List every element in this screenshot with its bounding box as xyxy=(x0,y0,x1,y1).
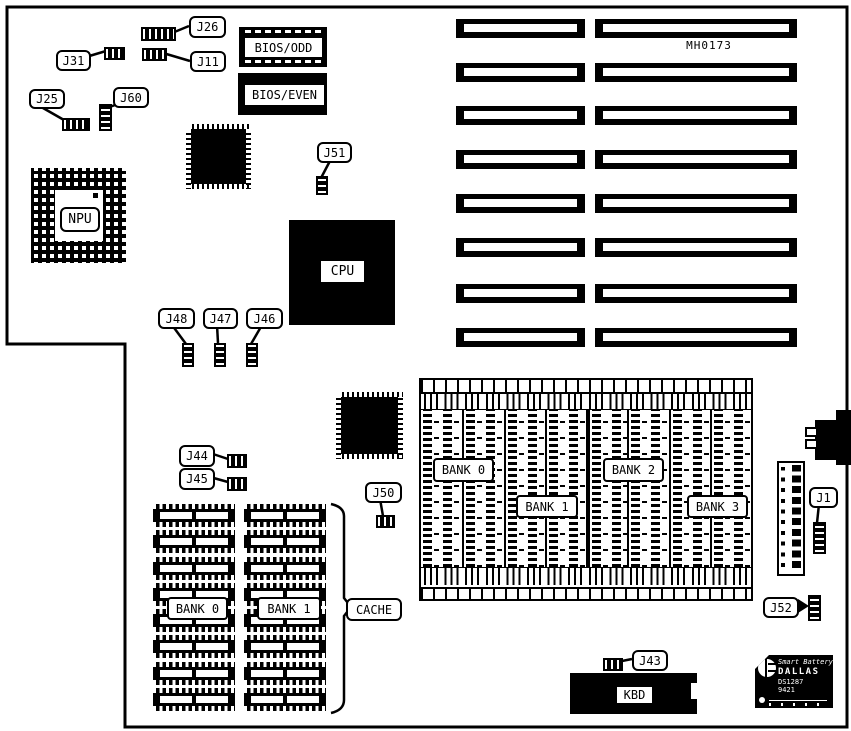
expansion-slot-bar xyxy=(595,106,797,125)
jumper-j47 xyxy=(214,343,226,367)
slot-stripe xyxy=(603,199,789,207)
jumper-j46 xyxy=(246,343,258,367)
bios-even-label: BIOS/EVEN xyxy=(245,85,324,105)
jumper-label-j1: J1 xyxy=(809,487,838,508)
jumper-label-j48: J48 xyxy=(158,308,195,329)
expansion-slot-bar xyxy=(456,19,585,38)
simm-bank1-label: BANK 1 xyxy=(516,495,578,518)
slot-stripe xyxy=(464,111,577,119)
battery-brand-script: Smart Battery xyxy=(778,659,833,666)
slot-stripe xyxy=(464,199,577,207)
expansion-slot-bar xyxy=(456,238,585,257)
jumper-j1 xyxy=(813,522,826,554)
bios-dash-top xyxy=(245,30,321,33)
expansion-slot-bar xyxy=(456,328,585,347)
jumper-j31 xyxy=(104,47,125,60)
cache-chip xyxy=(244,557,326,580)
jumper-label-j26: J26 xyxy=(189,16,226,38)
jumper-j51 xyxy=(316,176,328,195)
cache-label: CACHE xyxy=(346,598,402,621)
cache-chip xyxy=(153,557,235,580)
jumper-label-j52: J52 xyxy=(763,597,799,618)
slot-stripe xyxy=(464,243,577,251)
simm-socket xyxy=(710,410,751,567)
slot-stripe xyxy=(464,68,577,76)
battery-brand: DALLAS xyxy=(778,668,820,677)
slot-stripe xyxy=(603,24,789,32)
simm-tab-strip xyxy=(421,380,751,394)
jumper-label-j46: J46 xyxy=(246,308,283,329)
expansion-slot-bar xyxy=(456,284,585,303)
cache-bank0-label: BANK 0 xyxy=(167,597,228,620)
jumper-label-j51: J51 xyxy=(317,142,352,163)
simm-socket xyxy=(669,410,710,567)
simm-socket xyxy=(627,410,669,567)
expansion-slot-bar xyxy=(595,150,797,169)
simm-clip-row xyxy=(421,394,751,410)
cache-chip xyxy=(244,688,326,711)
simm-bank2-label: BANK 2 xyxy=(603,458,664,482)
cache-bank1-label: BANK 1 xyxy=(257,597,321,620)
slot-stripe xyxy=(464,155,577,163)
cache-chip xyxy=(244,504,326,527)
slot-stripe xyxy=(464,333,577,341)
cache-chip xyxy=(153,635,235,658)
cache-chip xyxy=(244,530,326,553)
simm-clip-row xyxy=(421,567,751,585)
expansion-slot-bar xyxy=(595,328,797,347)
simm-bank0-label: BANK 0 xyxy=(433,458,494,482)
jumper-j11 xyxy=(142,48,167,61)
expansion-slot-bar xyxy=(456,106,585,125)
expansion-slot-bar xyxy=(456,63,585,82)
expansion-slot-bar xyxy=(595,284,797,303)
cache-chip xyxy=(244,635,326,658)
jumper-label-j44: J44 xyxy=(179,445,215,467)
kbd-chip-notch xyxy=(691,683,697,699)
jumper-label-j31: J31 xyxy=(56,50,91,71)
j1-header-connector xyxy=(777,461,805,576)
jumper-j50 xyxy=(376,515,395,528)
expansion-slot-bar xyxy=(595,194,797,213)
qfp-chip xyxy=(336,392,403,459)
battery-bottom-marks xyxy=(769,700,827,706)
jumper-j45 xyxy=(227,477,247,491)
jumper-label-j60: J60 xyxy=(113,87,149,108)
jumper-label-j50: J50 xyxy=(365,482,402,503)
expansion-slot-bar xyxy=(595,63,797,82)
simm-memory-block xyxy=(419,378,753,601)
slot-stripe xyxy=(464,24,577,32)
simm-bank3-label: BANK 3 xyxy=(687,495,748,518)
slot-stripe xyxy=(603,333,789,341)
din-connector-neck xyxy=(815,420,838,460)
simm-socket xyxy=(545,410,586,567)
jumper-j48 xyxy=(182,343,194,367)
slot-stripe xyxy=(603,68,789,76)
npu-label: NPU xyxy=(60,207,100,232)
cache-chip xyxy=(153,504,235,527)
jumper-label-j45: J45 xyxy=(179,468,215,490)
slot-stripe xyxy=(464,289,577,297)
cache-chip xyxy=(153,688,235,711)
slot-stripe xyxy=(603,289,789,297)
din-connector-tab xyxy=(805,439,818,449)
jumper-j52 xyxy=(808,595,821,621)
slot-stripe xyxy=(603,155,789,163)
slot-stripe xyxy=(603,243,789,251)
jumper-j44 xyxy=(227,454,247,468)
simm-socket xyxy=(462,410,504,567)
npu-socket-cavity: NPU xyxy=(55,190,103,241)
battery-model: DS1287 xyxy=(778,679,803,686)
expansion-slot-bar xyxy=(595,238,797,257)
simm-socket xyxy=(586,410,627,567)
jumper-j60 xyxy=(99,104,112,131)
simm-socket xyxy=(421,410,462,567)
cpu-label: CPU xyxy=(321,261,364,282)
expansion-slot-bar xyxy=(595,19,797,38)
cache-chip xyxy=(153,662,235,685)
jumper-label-j47: J47 xyxy=(203,308,238,329)
battery-pin1-dot xyxy=(759,697,765,703)
kbd-label: KBD xyxy=(617,687,652,703)
jumper-label-j25: J25 xyxy=(29,89,65,109)
jumper-j26 xyxy=(141,27,176,41)
simm-tab-strip xyxy=(421,587,751,599)
jumper-label-j11: J11 xyxy=(190,51,226,72)
jumper-label-j43: J43 xyxy=(632,650,668,671)
din-connector-tab xyxy=(805,427,818,437)
slot-stripe xyxy=(603,111,789,119)
battery-date-code: 9421 xyxy=(778,687,795,694)
qfp-chip xyxy=(186,124,251,189)
cache-chip xyxy=(153,530,235,553)
dallas-battery-chip: Smart Battery DALLAS DS1287 9421 xyxy=(755,655,833,708)
bios-dash-bottom xyxy=(245,60,321,63)
expansion-slot-bar xyxy=(456,150,585,169)
pin1-dot xyxy=(93,193,98,198)
cache-chip xyxy=(244,662,326,685)
bios-odd-label: BIOS/ODD xyxy=(245,38,322,57)
simm-socket xyxy=(504,410,545,567)
npu-socket: NPU xyxy=(31,168,126,263)
jumper-j25 xyxy=(62,118,90,131)
jumper-j43 xyxy=(603,658,623,671)
board-part-number: MH0173 xyxy=(668,40,750,51)
motherboard-diagram: MH0173 BIOS/ODD BIOS/EVEN NPU CPU J26 J3… xyxy=(0,0,851,731)
din-connector-body xyxy=(836,410,851,465)
expansion-slot-bar xyxy=(456,194,585,213)
